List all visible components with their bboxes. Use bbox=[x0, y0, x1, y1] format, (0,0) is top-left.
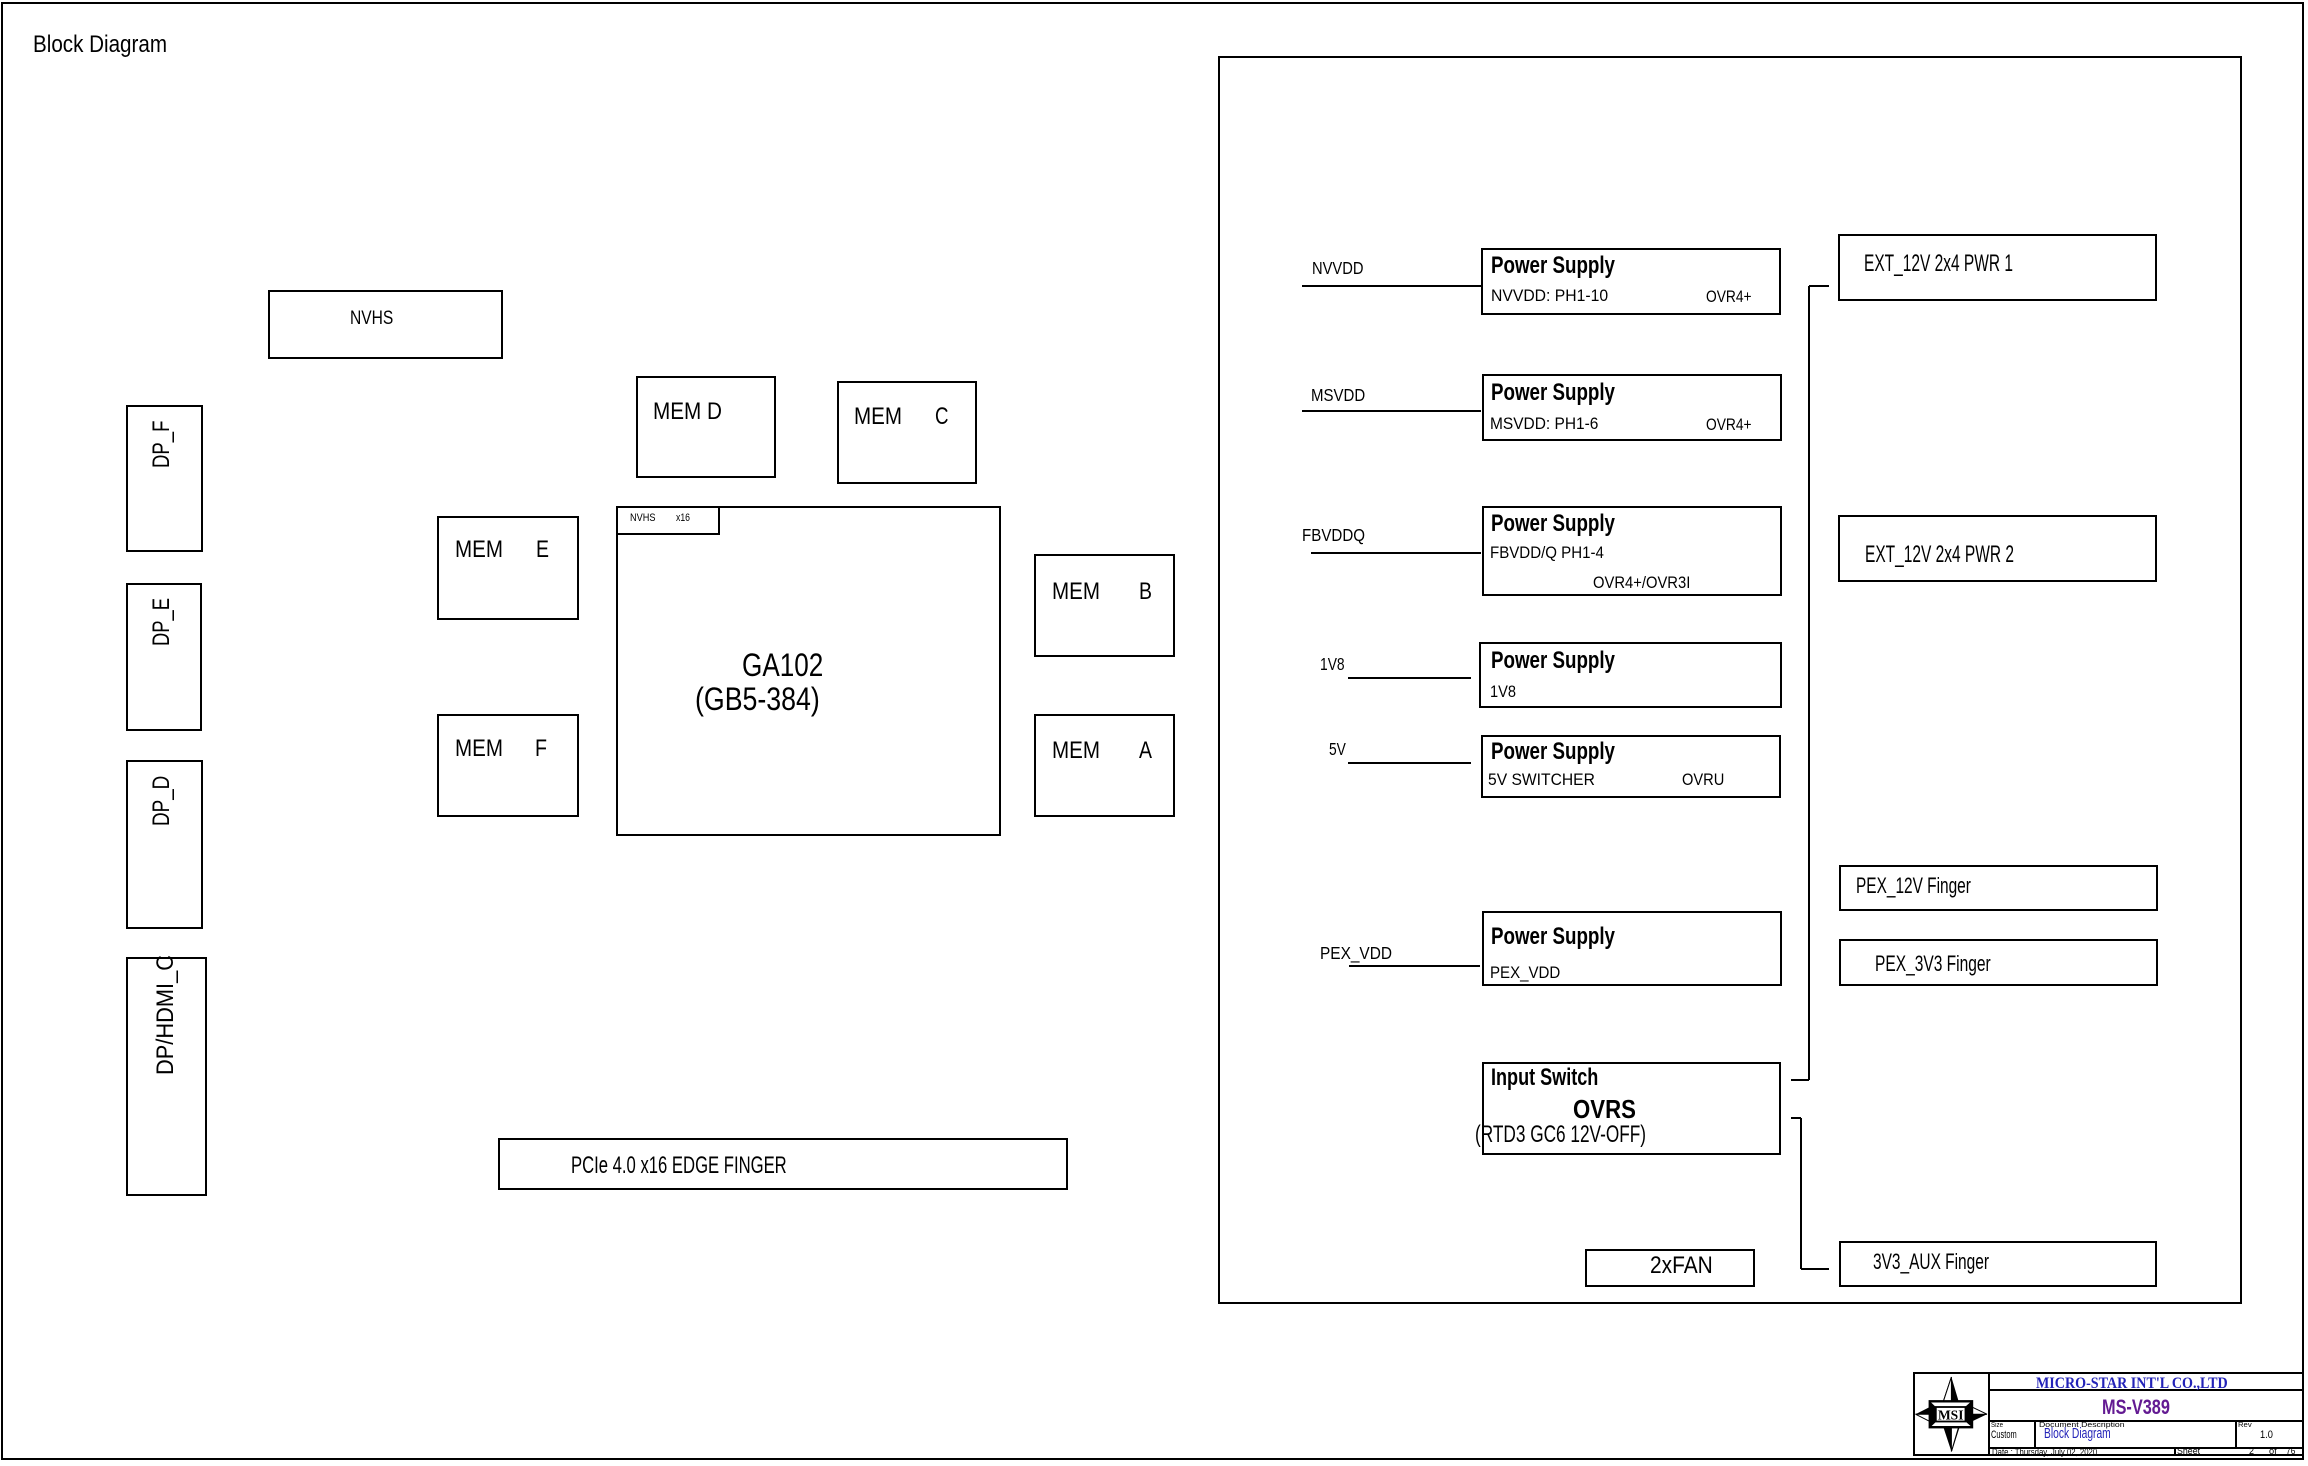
svg-text:MSI: MSI bbox=[1938, 1407, 1964, 1422]
